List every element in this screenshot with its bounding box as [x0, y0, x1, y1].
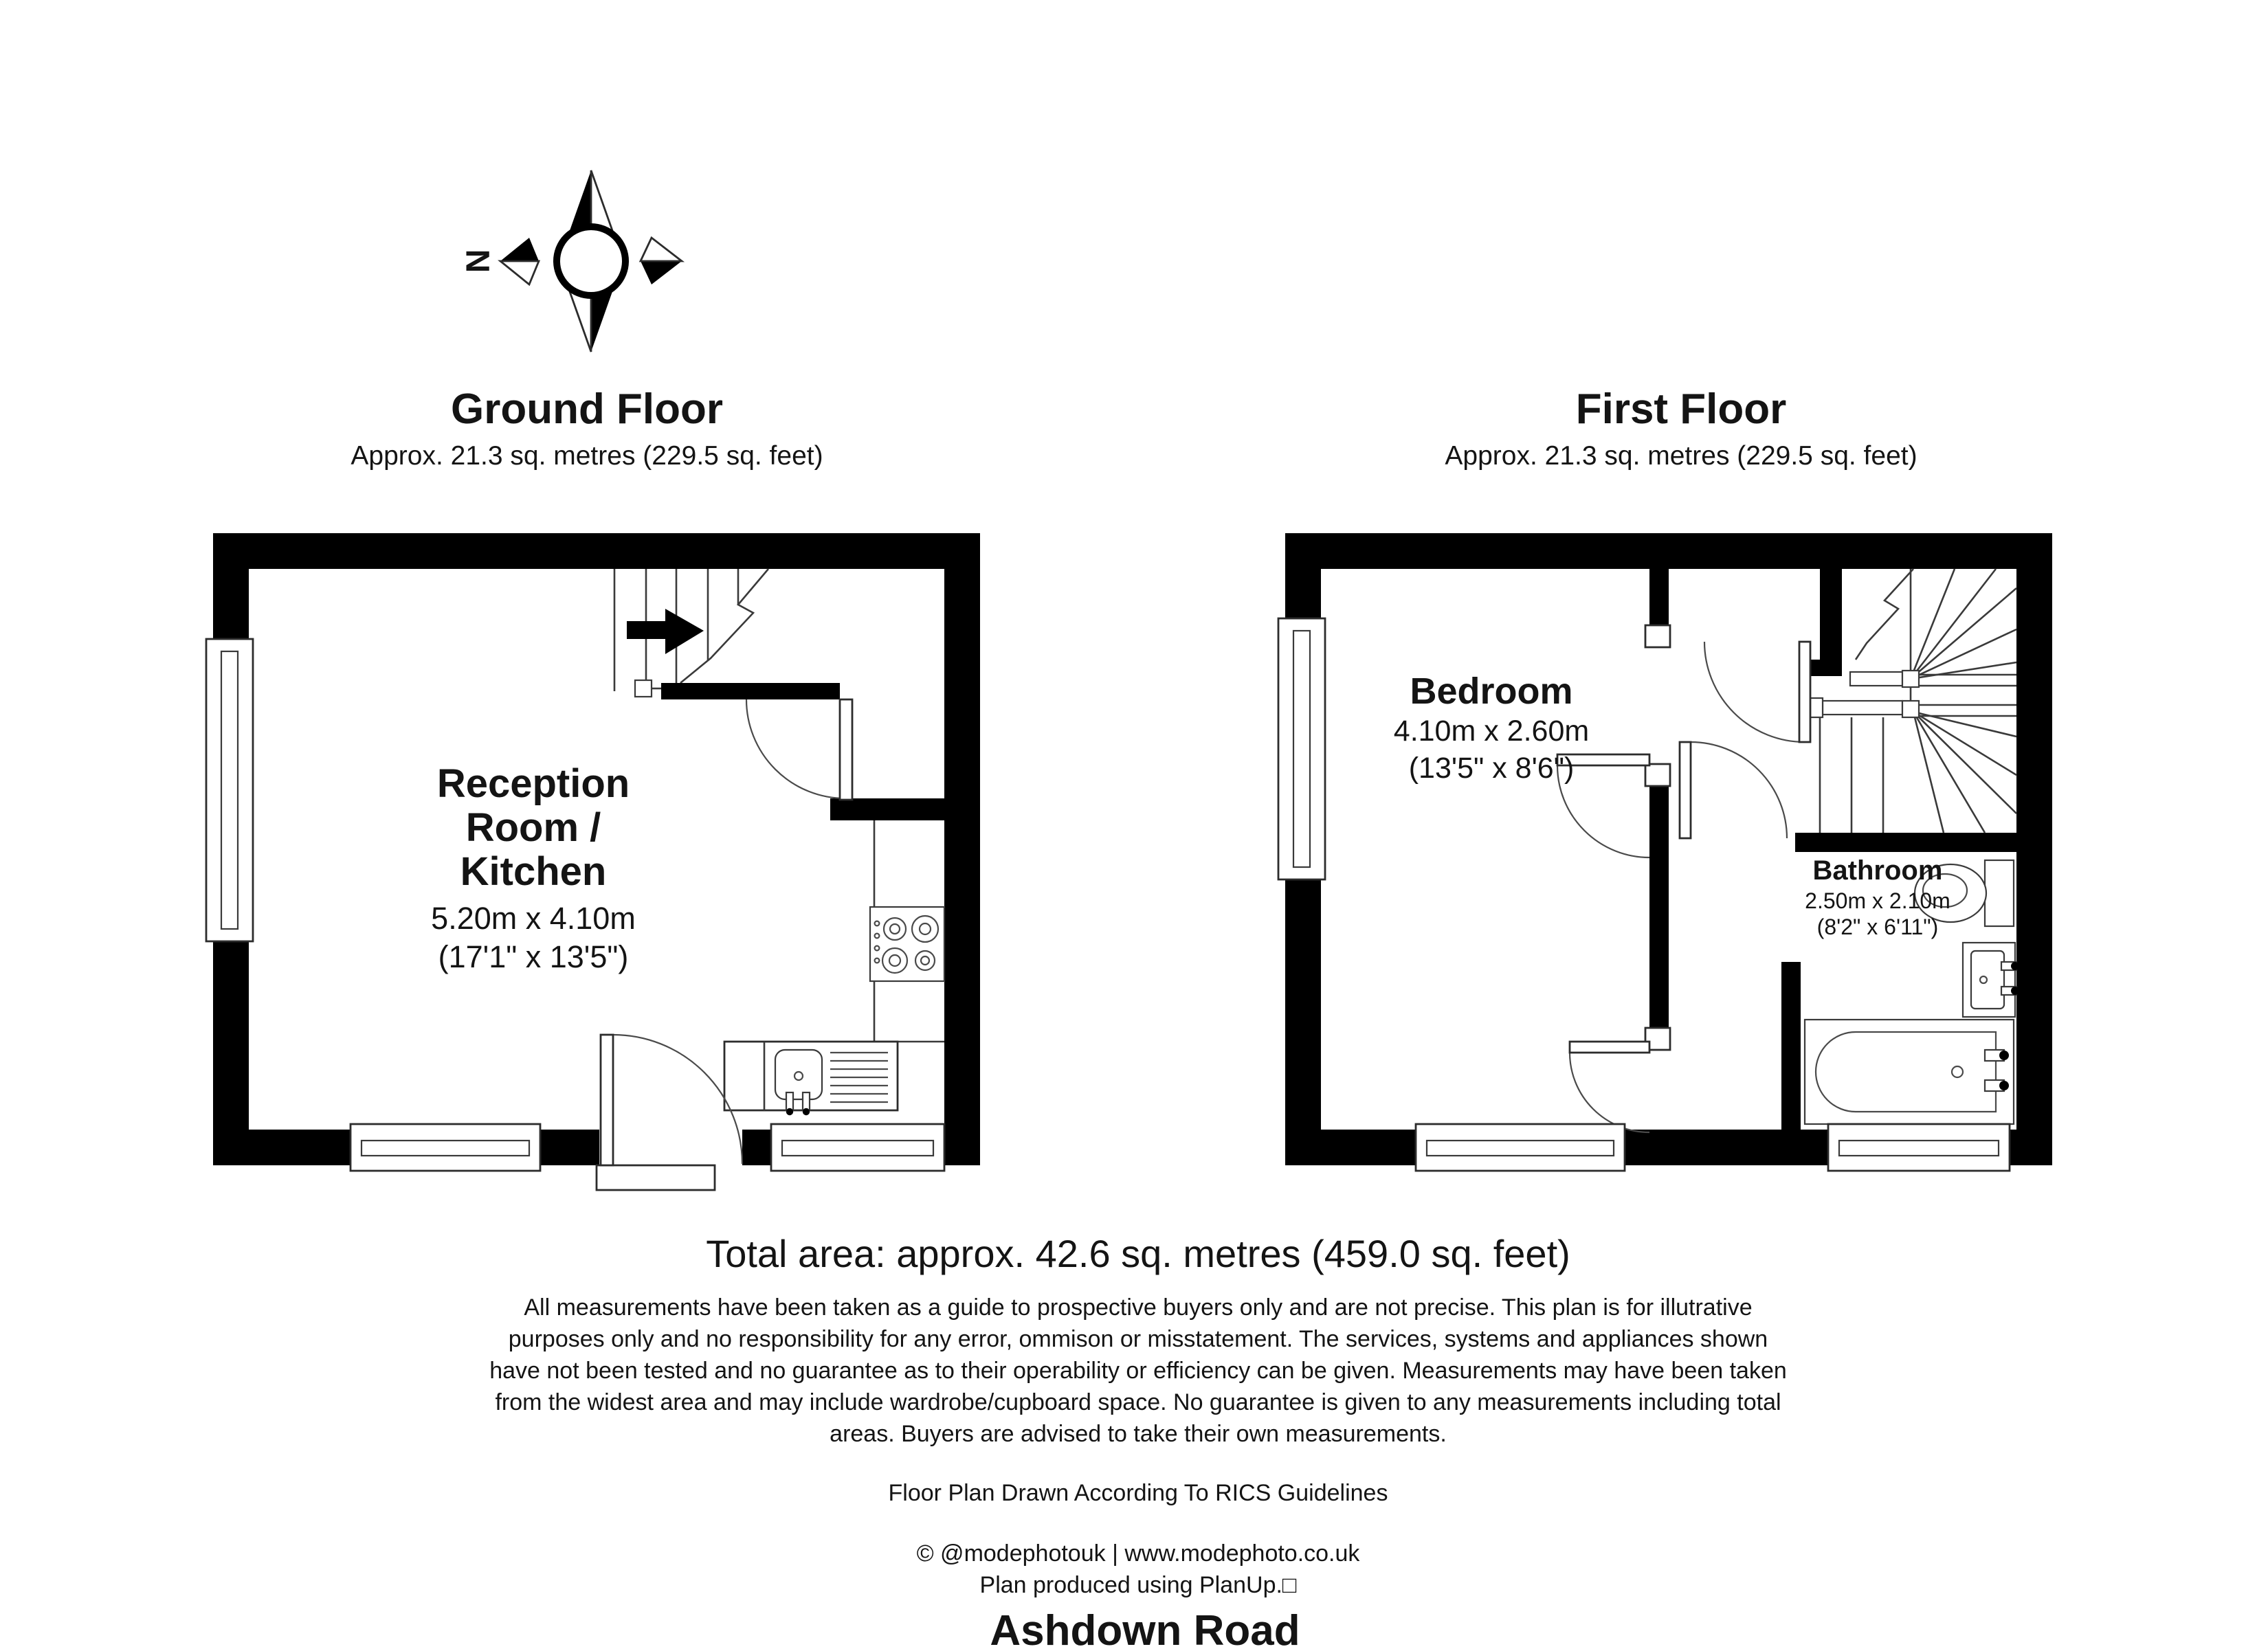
first-floor-title: First Floor — [1576, 385, 1787, 433]
gf-window-bottom-left — [351, 1124, 540, 1171]
gf-room-name-line3: Kitchen — [460, 849, 607, 894]
ground-floor-plan: Reception Room / Kitchen 5.20m x 4.10m (… — [206, 533, 980, 1190]
ff-stair-handrail — [1850, 672, 1902, 686]
ff-door-jamb — [1645, 764, 1670, 786]
gf-entrance-door-leaf — [601, 1035, 613, 1165]
gf-interior-door-leaf — [840, 699, 852, 800]
bathroom-sink-icon — [1963, 943, 2019, 1017]
ff-bathroom-dim-imperial: (8'2" x 6'11") — [1817, 915, 1939, 939]
floor-plan-page: N Ground Floor Approx. 21.3 sq. metres (… — [0, 0, 2268, 1649]
ff-stair-newel-post — [1902, 701, 1919, 717]
disclaimer-line: All measurements have been taken as a gu… — [524, 1294, 1752, 1321]
disclaimer-line: purposes only and no responsibility for … — [509, 1326, 1768, 1352]
compass-north-label: N — [459, 249, 496, 273]
gf-room-name-line1: Reception — [437, 761, 630, 806]
footer: Total area: approx. 42.6 sq. metres (459… — [489, 1232, 1787, 1649]
gf-room-dim-metric: 5.20m x 4.10m — [431, 901, 636, 936]
ff-window-bedroom — [1416, 1124, 1625, 1171]
ff-bedroom-dim-imperial: (13'5" x 8'6") — [1409, 752, 1575, 785]
first-floor-area: Approx. 21.3 sq. metres (229.5 sq. feet) — [1445, 441, 1917, 471]
gf-window-bottom-right — [771, 1124, 944, 1171]
first-floor-plan: Bedroom 4.10m x 2.60m (13'5" x 8'6") Bat… — [1278, 533, 2052, 1171]
hob-icon — [870, 907, 944, 981]
gf-door-threshold — [597, 1165, 715, 1190]
ff-bathroom-name: Bathroom — [1813, 855, 1943, 886]
gf-stair-newel-post — [635, 680, 652, 697]
compass-rose-icon: N — [459, 170, 682, 352]
bathtub-icon — [1805, 1020, 2014, 1124]
copyright-text: © @modephotouk | www.modephoto.co.uk — [917, 1540, 1361, 1567]
ff-bedroom-dim-metric: 4.10m x 2.60m — [1394, 715, 1589, 748]
floor-plan-drawing: N Ground Floor Approx. 21.3 sq. metres (… — [0, 0, 2268, 1649]
ff-bathroom-left-wall — [1781, 962, 1801, 1130]
ground-floor-title: Ground Floor — [451, 385, 723, 433]
ground-floor-area: Approx. 21.3 sq. metres (229.5 sq. feet) — [351, 441, 823, 471]
disclaimer-line: from the widest area and may include war… — [495, 1389, 1781, 1415]
ff-bedroom-name: Bedroom — [1410, 671, 1572, 712]
disclaimer-line: areas. Buyers are advised to take their … — [830, 1421, 1447, 1447]
kitchen-sink-icon — [724, 1042, 898, 1115]
ff-door-jamb — [1645, 625, 1670, 647]
gf-room-name-line2: Room / — [466, 805, 601, 850]
total-area-text: Total area: approx. 42.6 sq. metres (459… — [706, 1232, 1570, 1275]
ff-bathroom-top-wall — [1795, 833, 2016, 852]
ff-stair-handrail — [1823, 701, 1902, 715]
ff-bathroom-dim-metric: 2.50m x 2.10m — [1805, 888, 1950, 913]
gf-stairs-direction-arrow-icon — [627, 621, 665, 639]
gf-window-left — [206, 639, 253, 941]
ff-divider-wall-mid — [1649, 786, 1669, 1028]
ff-bedroom-lower-door-leaf — [1570, 1042, 1649, 1053]
ff-window-bathroom — [1828, 1124, 2010, 1171]
rics-guidelines-text: Floor Plan Drawn According To RICS Guide… — [889, 1480, 1388, 1506]
ff-landing-door-leaf — [1799, 642, 1810, 742]
ff-divider-wall-top — [1649, 569, 1669, 625]
ff-stair-stub-wall — [1820, 569, 1842, 676]
ff-bathroom-door-leaf — [1680, 742, 1691, 838]
gf-kitchen-stub-wall — [830, 798, 944, 820]
gf-interior-wall — [661, 683, 840, 699]
ff-stair-newel-post — [1902, 671, 1919, 687]
disclaimer-line: have not been tested and no guarantee as… — [489, 1358, 1787, 1384]
produced-with-text: Plan produced using PlanUp.□ — [980, 1572, 1297, 1598]
ff-window-left — [1278, 618, 1325, 879]
address-title: Ashdown Road — [990, 1607, 1300, 1649]
gf-room-dim-imperial: (17'1" x 13'5") — [438, 939, 629, 974]
